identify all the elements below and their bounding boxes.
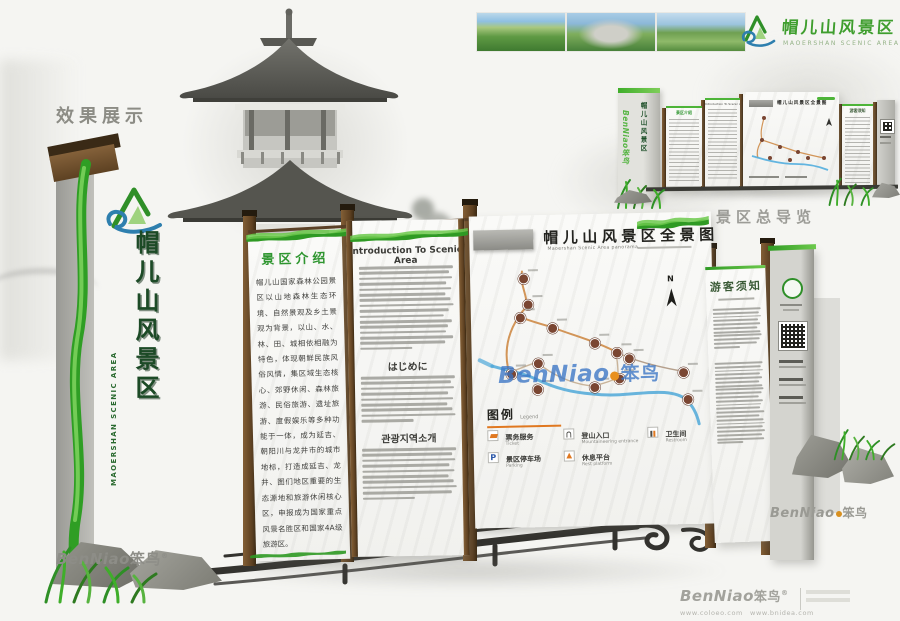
legend-title: 图例 [487,408,515,423]
parking-icon: P [488,452,499,463]
notice-paragraph-lines [715,361,766,446]
japanese-paragraph-lines [361,375,456,425]
stone-gate-photo [567,13,655,51]
mini-legend-line [785,176,807,178]
map-label-bar [528,269,538,271]
watermark-brand-cn: 笨鸟 [754,590,781,605]
benniao-watermark-map: BenNiao笨鸟 [498,359,660,389]
panel-intro-body: 帽儿山国家森林公园景区以山地森林生态环境、自然景观及乡土景观为背景，以山、水、林… [256,273,343,552]
overview-caption: 景区总导览 [716,206,816,227]
legend-underline [487,425,561,429]
brand-name-en: MAOERSHAN SCENIC AREA [783,40,900,47]
watermark-brand: BenNiao [680,587,754,605]
footer-tagline-bar [806,590,850,594]
monument-logo-icon [102,180,168,236]
monument-green-ribbon [58,158,106,582]
watermark-brand: BenNiao [621,110,630,149]
benniao-watermark-right: BenNiao笨鸟 [770,504,868,521]
footer-urls: www.coloeo.com www.bnidea.com [680,607,895,617]
attraction-marker-icon [677,367,688,378]
design-presentation-canvas: 帽儿山风景区 MAOERSHAN SCENIC AREA 效果展示 帽儿山风景区… [0,0,900,621]
legend-title-sub: Legend [520,414,538,420]
mini-text-bar [880,136,891,138]
attraction-marker-icon [514,312,525,323]
mini-monument-green-cap [618,88,660,93]
korean-paragraph-lines [362,447,457,503]
map-label-bar [688,363,698,365]
brand-logo [740,10,778,52]
legend-item-restroom: 卫生间 Restroom [647,426,687,446]
registered-mark: ® [161,552,169,560]
map-label-bar [599,334,609,336]
watermark-brand: BenNiao [56,550,130,568]
map-label-bar [525,308,535,310]
footer-brand-block: BenNiao笨鸟® www.coloeo.com www.bnidea.com [680,586,895,616]
legend-sublabel: Ticket [506,441,534,448]
pillar-block-heading [779,378,803,381]
legend-sublabel: Mountaineering entrance [582,439,639,446]
watermark-brand: BenNiao [498,361,610,389]
pillar-block-line [779,366,806,368]
mini-board-multilang: Introduction To Scenic Area [705,98,740,186]
watermark-brand: BenNiao [770,506,835,521]
mini-grass-right [822,170,884,210]
legend-item-parking: P 景区停车场 Parking [488,451,541,471]
watermark-dot [836,511,842,517]
mini-grass-left [610,174,676,210]
mini-map-brush [817,97,835,100]
attraction-marker-icon [611,347,622,358]
footer-divider [800,588,801,610]
monument-vertical-title-cn: 帽儿山风景区 [128,230,163,430]
ticket-icon [487,430,498,441]
monument-vertical-title-en: MAOERSHAN SCENIC AREA [110,236,118,486]
panel-panorama-map: 帽儿山风景区全景图 Maoershan Scenic Area panorama… [469,212,717,529]
footer-brand: BenNiao笨鸟® [680,586,895,605]
mini-qr-code [881,120,894,133]
pillar-block-line [779,384,806,386]
map-label-bar [692,390,702,392]
legend-sublabel: Parking [506,463,541,470]
english-paragraph-lines [359,265,454,353]
legend-item-platform: 休息平台 Rest platform [564,450,613,470]
platform-icon [564,450,575,461]
pillar-block-line [779,402,806,404]
legend-sublabel: Rest platform [582,462,612,469]
watermark-dot [611,371,620,380]
map-label-bar [621,343,631,345]
pine-tree-blob [412,198,434,220]
watermark-brand-cn: 笨鸟 [843,506,868,520]
registered-mark: ® [781,589,789,597]
legend-label: 票务服务 [505,433,533,442]
attraction-marker-icon [546,322,557,333]
legend-label: 景区停车场 [506,455,541,464]
notice-title: 游客须知 [706,277,767,295]
mini-map-graphic [746,112,836,174]
legend-item-entrance: 登山入口 Mountaineering entrance [563,427,638,448]
brand-name-cn: 帽儿山风景区 [781,14,897,38]
mini-legend-line [749,176,779,178]
grass-right [826,410,900,474]
panel-multilang-title-kr: 관광지역소개 [350,429,468,446]
mini-map-title: 帽儿山风景区全景图 [777,100,827,106]
entrance-icon [563,428,574,439]
watermark-brand-cn: 笨鸟 [130,550,161,568]
footer-tagline-bar [806,598,850,602]
attraction-marker-icon [589,337,600,348]
overview-render: 帽儿山风景区 BenNiao笨鸟 景区介绍 Introduction To Sc… [610,82,900,214]
panel-visitor-notice: 游客须知 [705,265,775,543]
pillar-text-bar [783,309,799,311]
background-slab [814,298,840,513]
map-legend: 图例 Legend 票务服务 Ticket 登山入口 Mountaineerin… [487,400,708,475]
map-label-bar [634,349,644,351]
mini-board-title: 景区介绍 [666,110,702,116]
legend-item-ticket: 票务服务 Ticket [487,429,533,449]
attraction-marker-icon [517,273,528,284]
watermark-brand-cn: 笨鸟 [621,149,630,165]
notice-subtitle-bar [718,297,754,300]
panel-scenic-intro: 景区介绍 帽儿山国家森林公园景区以山地森林生态环境、自然景观及乡土景观为背景，以… [248,233,351,561]
panel-multilang-title-jp: はじめに [348,357,466,374]
pillar-block-heading [779,396,803,399]
mountain-logo-icon [740,10,778,52]
mini-board-title: Introduction To Scenic Area [705,102,740,106]
notice-list-lines [713,307,762,350]
panel-multilang-intro: Introduction To Scenic Area はじめに 관광지역소개 [346,219,470,557]
watermark-brand-cn: 笨鸟 [620,363,659,386]
pillar-green-cap [768,244,816,251]
pillar-text-bar [780,304,802,306]
panel-multilang-title-en: Introduction To Scenic Area [347,245,465,267]
legend-sublabel: Restroom [666,438,688,444]
map-label-bar [557,319,567,321]
qr-code [779,322,807,350]
pillar-block-heading [779,360,803,363]
grass-left [30,534,170,606]
map-label-bar [532,295,542,297]
map-label-bar [543,354,553,356]
benniao-watermark-bottom-left: BenNiao笨鸟® [56,548,168,569]
mountain-valley-photo [477,13,565,51]
meadow-peak-photo [657,13,745,51]
mini-board-title: 游客须知 [842,108,873,114]
restroom-icon [647,427,658,438]
pillar-logo-ring [782,278,803,299]
panel-intro-title: 景区介绍 [248,247,342,268]
mini-text-bar [880,142,891,144]
effect-display-label: 效果展示 [56,102,148,128]
notice-green-edge [705,265,765,270]
mini-map-cap [749,100,773,107]
header-photo-strip [477,13,745,51]
